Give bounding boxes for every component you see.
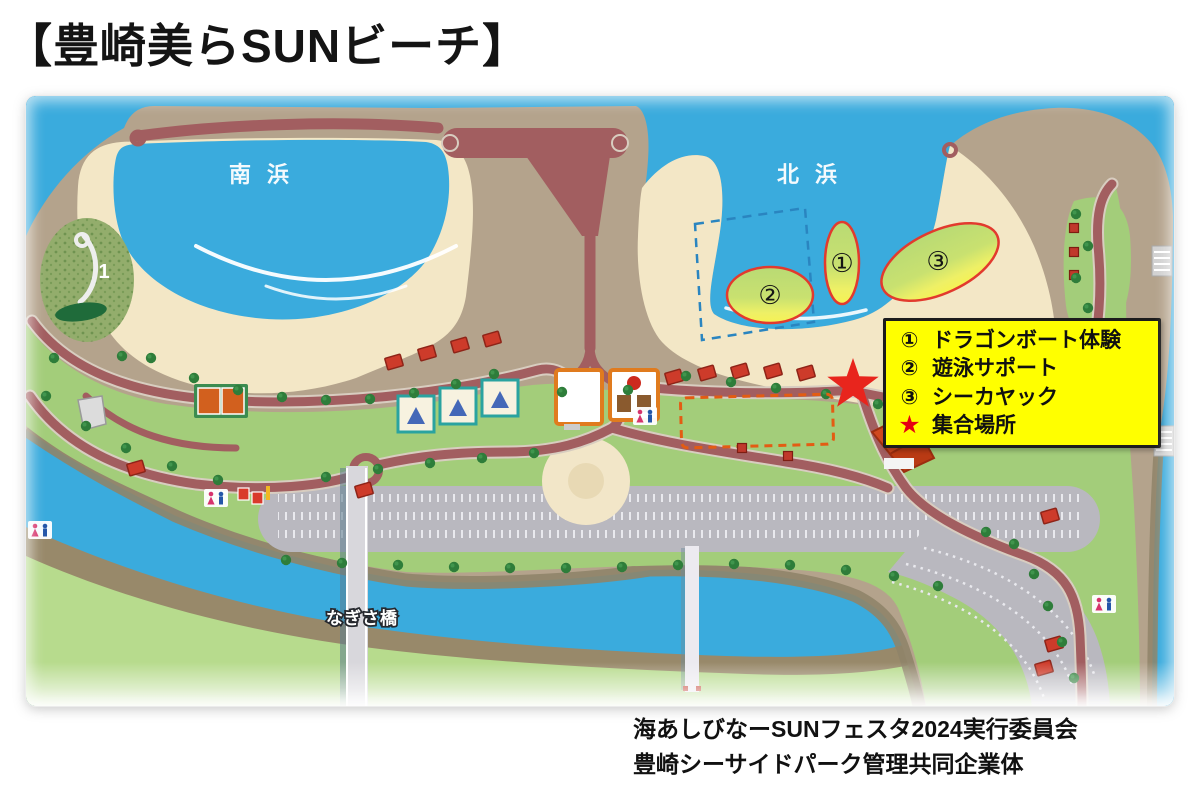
page-title: 【豊崎美らSUNビーチ】 [6, 10, 529, 76]
circled-1-icon: ① [896, 327, 923, 354]
legend-item-label: 遊泳サポート [932, 355, 1058, 382]
circled-2-icon: ② [896, 355, 923, 382]
restroom-icon [28, 521, 52, 539]
nagisa-bridge-label: なぎさ橋 [326, 608, 398, 628]
screenshot-root: 【豊崎美らSUNビーチ】 [0, 0, 1200, 800]
legend-item-label: ドラゴンボート体験 [932, 327, 1121, 354]
restroom-icon [633, 407, 657, 425]
activity-area-1: ① [825, 222, 859, 304]
garden-area: 1 [40, 218, 134, 342]
beach-house-building [556, 370, 602, 430]
activity-1-number: ① [830, 248, 853, 278]
legend-item-label: 集合場所 [932, 412, 1016, 439]
credit-line-committee: 海あしびなーSUNフェスタ2024実行委員会 [633, 712, 1078, 747]
credits: 海あしびなーSUNフェスタ2024実行委員会 豊崎シーサイドパーク管理共同企業体 [633, 712, 1078, 782]
north-beach-label: 北浜 [777, 162, 853, 187]
legend-item-label: シーカヤック [932, 384, 1058, 411]
garden-number-label: 1 [98, 261, 109, 283]
activity-3-number: ③ [926, 246, 949, 276]
star-icon: ★ [896, 412, 923, 439]
activity-2-number: ② [758, 280, 781, 310]
south-beach-label: 南浜 [229, 162, 305, 187]
legend: ① ドラゴンボート体験 ② 遊泳サポート ③ シーカヤック ★ 集合場所 [883, 318, 1161, 448]
bottom-fade [26, 662, 1174, 706]
restroom-icon [204, 489, 228, 507]
legend-item-sea-kayak: ③ シーカヤック [896, 384, 1148, 411]
park-map: 1 ② ① ③ [26, 96, 1174, 706]
activity-area-2: ② [727, 267, 813, 323]
legend-item-meeting-place: ★ 集合場所 [896, 412, 1148, 439]
credit-line-operator: 豊崎シーサイドパーク管理共同企業体 [633, 747, 1078, 782]
legend-item-swim-support: ② 遊泳サポート [896, 355, 1148, 382]
legend-item-dragon-boat: ① ドラゴンボート体験 [896, 327, 1148, 354]
beach-ramp [1152, 246, 1172, 276]
restroom-icon [1092, 595, 1116, 613]
circled-3-icon: ③ [896, 384, 923, 411]
